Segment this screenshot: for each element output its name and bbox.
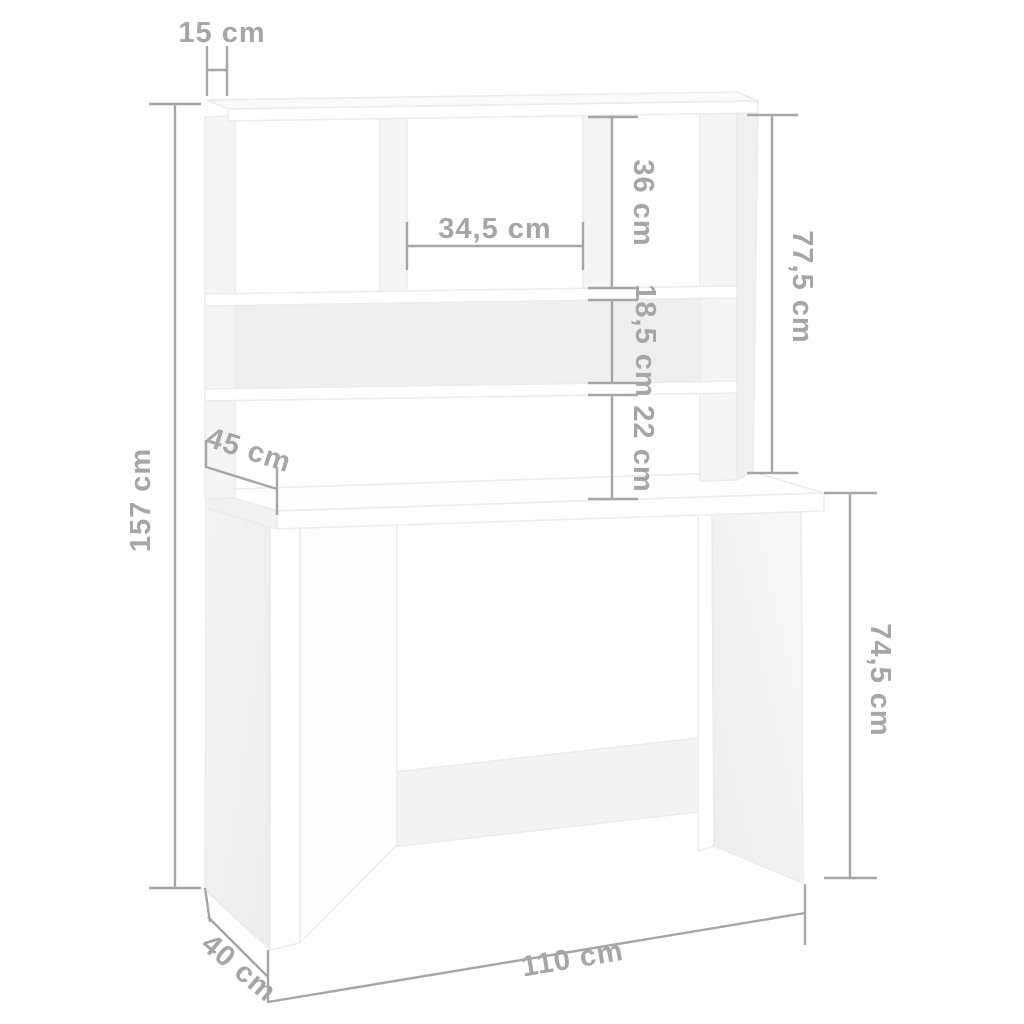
- dimension-hutch-top-depth: 15 cm: [178, 17, 265, 96]
- dimension-desk-height: 74,5 cm: [824, 493, 896, 878]
- hutch: [205, 92, 758, 499]
- dim-label-hutch-height: 77,5 cm: [786, 230, 818, 343]
- desk-right-leg-face: [712, 496, 803, 883]
- dim-label-upper-compartment-height: 36 cm: [627, 159, 659, 246]
- dim-label-hutch-top-depth: 15 cm: [178, 17, 265, 49]
- dim-label-desk-width: 110 cm: [519, 935, 626, 984]
- hutch-right-side-face: [737, 101, 758, 480]
- desk-left-leg-inner-face: [300, 516, 397, 943]
- dim-label-shelf-to-desktop-gap: 22 cm: [627, 405, 659, 492]
- hutch-divider-right: [583, 112, 610, 290]
- dim-label-shelf-compartment-height: 18,5 cm: [629, 284, 661, 397]
- dimension-middle-compartment-width: 34,5 cm: [407, 213, 583, 270]
- dim-label-middle-compartment-width: 34,5 cm: [438, 213, 551, 245]
- hutch-divider-left: [380, 115, 407, 292]
- diagram-canvas: 15 cm 157 cm 34,5 cm 36 cm 18,5 cm 22 cm: [0, 0, 1024, 1024]
- dimension-diagram: 15 cm 157 cm 34,5 cm 36 cm 18,5 cm 22 cm: [0, 0, 1024, 1024]
- dim-label-desk-height: 74,5 cm: [864, 623, 896, 736]
- dimension-desk-width: 110 cm: [268, 884, 805, 1003]
- desk: [205, 472, 824, 950]
- desk-left-leg-front-edge: [270, 524, 300, 950]
- dimension-total-height: 157 cm: [125, 104, 201, 888]
- desk-left-leg-side-face: [205, 506, 270, 950]
- dim-label-total-height: 157 cm: [125, 448, 157, 552]
